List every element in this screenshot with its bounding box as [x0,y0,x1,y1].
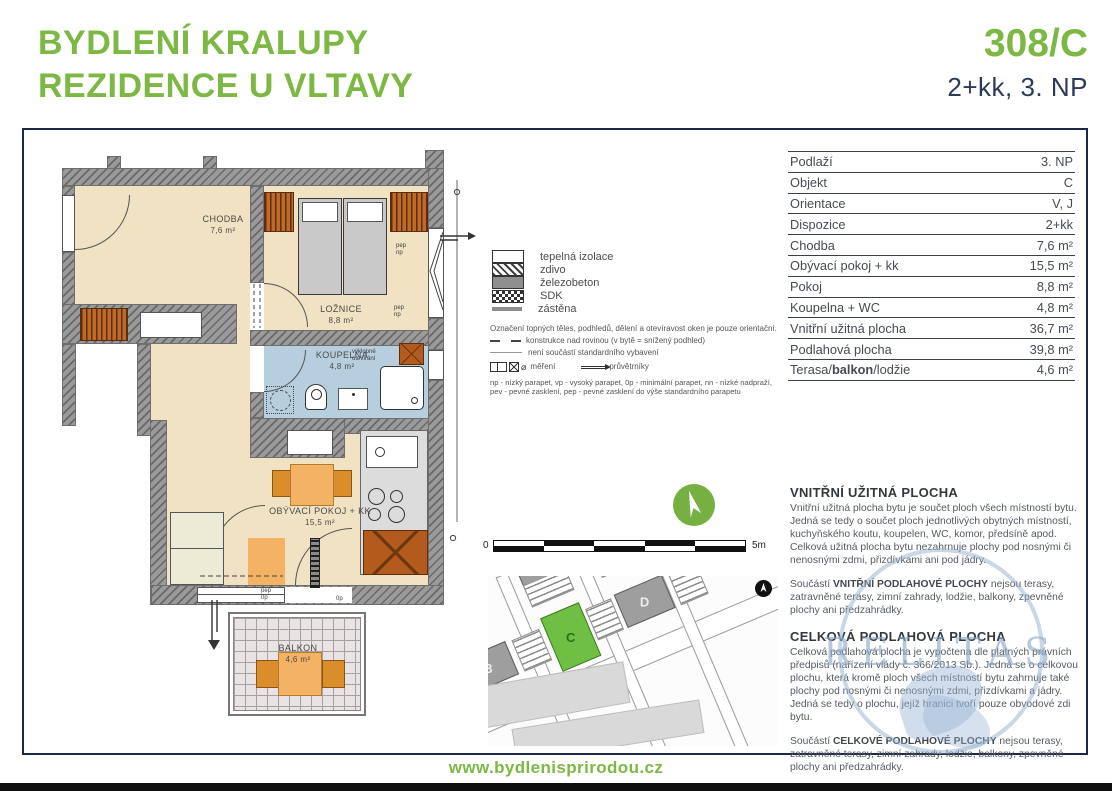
legend-note-text: konstrukce nad rovinou (v bytě = snížený… [526,336,705,347]
dashed-line-icon [490,340,500,342]
washer-drum [270,390,291,411]
spec-value: 7,6 m² [1037,238,1073,253]
annotation-pep-np-1: pep np [396,243,406,256]
label-balkon: BALKON 4,6 m² [258,643,338,665]
room-name: LOŽNICE [303,304,379,315]
spec-row: Vnitřní užitná plocha36,7 m² [788,318,1075,339]
info-blocks: VNITŘNÍ UŽITNÁ PLOCHAVnitřní užitná ploc… [790,485,1078,791]
wall-living-left [150,420,167,605]
wall-stub-top-2 [203,156,217,169]
legend-note-1: Označení topných těles, podhledů, dělení… [490,324,780,335]
kitchen-sink [366,436,418,468]
dining-table [290,464,334,506]
room-name: BALKON [258,643,338,654]
north-compass-icon [673,484,715,526]
legend-item: zdivo [492,264,777,275]
diameter-icon: ⌀ [521,362,526,373]
spec-row: Pokoj8,8 m² [788,277,1075,298]
legend-note-text: np - nízký parapet, vp - vysoký parapet,… [490,378,780,388]
shower-drain [411,397,418,404]
brick-swatch-icon [492,263,524,276]
wardrobe-left [264,192,294,232]
spec-row: Podlaží3. NP [788,152,1075,173]
wall-left-c [62,344,76,426]
burner-1 [368,488,385,505]
dining-chair-left [272,470,292,497]
legend-note-2: konstrukce nad rovinou (v bytě = snížený… [490,336,780,347]
legend-item: zástěna [492,304,777,315]
sofa [170,512,224,585]
washer-outline [266,386,294,414]
spec-value: 39,8 m² [1030,342,1073,357]
room-area: 7,6 m² [185,225,261,236]
label-loznice: LOŽNICE 8,8 m² [303,304,379,326]
pillow-1 [302,202,338,222]
spec-row: Chodba7,6 m² [788,235,1075,256]
legend: tepelná izolacezdivoželezobetonSDKzástěn… [492,251,777,317]
wall-stub-top-3 [425,150,444,169]
title-line-2: REZIDENCE U VLTAVY [38,65,413,108]
annotation-vyklopne: výklopné otevírání [352,349,398,362]
spec-label: Pokoj [790,279,822,294]
room-area: 4,8 m² [300,361,384,372]
legend-note-3: není součástí standardního vybavení [490,348,780,359]
spec-row: ObjektC [788,173,1075,194]
sdk-swatch-icon [492,290,524,303]
scale-end-label: 5m [752,540,766,551]
spec-label: Terasa/balkon/lodžie [790,362,910,377]
site-plan: B C D [488,576,778,746]
spec-row: Dispozice2+kk [788,214,1075,235]
spec-value: 3. NP [1041,154,1073,169]
spec-value: 36,7 m² [1030,321,1073,336]
scale-bar-segment [594,546,644,551]
building-label: D [640,594,649,609]
legend-note-text: pev - pevné zasklení, pep - pevné zaskle… [490,387,780,397]
spec-value: 15,5 m² [1030,258,1073,273]
legend-item-label: SDK [540,290,563,302]
wardrobe-right [390,192,428,232]
spec-value: C [1064,175,1073,190]
side-table [248,538,285,585]
sofa-cushion-line [171,548,223,549]
legend-note-text: průvětrníky [609,362,649,373]
building-label: B [488,660,493,675]
spec-label: Chodba [790,238,835,253]
wall-corridor-left [137,344,151,436]
dashed-line-icon [511,340,521,342]
spec-row: Terasa/balkon/lodžie4,6 m² [788,360,1075,381]
info-block-heading: VNITŘNÍ UŽITNÁ PLOCHA [790,485,1078,500]
legend-note-4: ⌀ měření průvětrníky [490,362,780,373]
unit-number: 308/C [984,22,1088,66]
spec-value: V, J [1052,196,1073,211]
tilt-window-box [399,343,424,365]
wall-left-b [62,252,75,308]
unit-subtitle: 2+kk, 3. NP [947,72,1088,103]
label-chodba: CHODBA 7,6 m² [185,214,261,236]
dining-chair-right [332,470,352,497]
legend-item-label: tepelná izolace [540,251,613,263]
insulation-swatch-icon [492,250,524,263]
spec-label: Obývací pokoj + kk [790,258,898,273]
annotation-pep-0p: pep 0p [261,588,271,601]
info-block-heading: CELKOVÁ PODLAHOVÁ PLOCHA [790,629,1078,644]
wall-right-a [428,168,444,228]
legend-item: železobeton [492,277,777,288]
wall-stub-top-1 [107,156,121,169]
spec-label: Vnitřní užitná plocha [790,321,906,336]
toilet [305,384,327,410]
legend-item-label: železobeton [540,277,599,289]
spec-label: Orientace [790,196,845,211]
meter-cross-icon [509,362,519,372]
flyer-page: BYDLENÍ KRALUPY REZIDENCE U VLTAVY 308/C… [0,0,1112,791]
room-name: CHODBA [185,214,261,225]
spec-label: Dispozice [790,217,845,232]
spec-row: Podlahová plocha39,8 m² [788,339,1075,360]
spec-value: 8,8 m² [1037,279,1073,294]
window-bedroom [428,228,444,318]
bottom-bar [0,783,1112,791]
shower [380,366,424,410]
wardrobe-entry [80,308,128,341]
info-paragraph: Součástí VNITŘNÍ PODLAHOVÉ PLOCHY nejsou… [790,578,1078,617]
annotation-0p: 0p [336,596,343,603]
toilet-bowl [311,389,322,400]
wall-top [62,168,444,186]
entrance-opening [62,195,75,252]
spec-value: 2+kk [1046,217,1073,232]
vent-arrow-icon [581,366,605,369]
kitchen-hood-box [287,430,333,455]
spec-row: OrientaceV, J [788,194,1075,215]
window-living [197,587,285,603]
room-area: 4,6 m² [258,654,338,665]
title-line-1: BYDLENÍ KRALUPY [38,22,413,65]
info-block: VNITŘNÍ UŽITNÁ PLOCHAVnitřní užitná ploc… [790,485,1078,617]
partition-swatch-icon [492,307,522,311]
room-area: 15,5 m² [245,517,395,528]
spec-label: Koupelna + WC [790,300,880,315]
bath-sink [338,388,368,410]
legend-item: SDK [492,291,777,302]
info-paragraph: Vnitřní užitná plocha bytu je součet plo… [790,502,1078,567]
spec-value: 4,6 m² [1037,362,1073,377]
scale-bar-segment [544,546,594,551]
kitchen-corner-cabinet [363,530,428,575]
spec-row: Koupelna + WC4,8 m² [788,298,1075,319]
north-arrow-icon [673,484,715,526]
legend-item-label: zástěna [538,303,577,315]
pillow-2 [347,202,383,222]
wall-right-b [428,318,444,350]
spec-table: Podlaží3. NPObjektCOrientaceV, JDispozic… [788,151,1075,381]
annotation-pep-np-2: pep np [394,305,404,318]
scale-bar-segment [494,546,544,551]
meter-box-icon [490,362,507,372]
footer-url[interactable]: www.bydlenisprirodou.cz [0,758,1112,778]
parking-strip [593,576,645,578]
scale-bar [493,540,746,552]
window-bathroom [428,350,444,380]
legend-item: tepelná izolace [492,251,777,262]
thin-line-icon [490,352,522,353]
scale-bar-segment [695,546,745,551]
legend-note-text: měření [530,362,555,373]
spec-row: Obývací pokoj + kk15,5 m² [788,256,1075,277]
room-area: 8,8 m² [303,315,379,326]
burner-2 [390,490,403,503]
partition-screen [310,538,320,588]
wall-right-c [428,380,444,605]
legend-notes: Označení topných těles, podhledů, dělení… [490,322,780,397]
legend-note-text: Označení topných těles, podhledů, dělení… [490,324,777,335]
spec-label: Objekt [790,175,827,190]
info-paragraph: Celková podlahová plocha je vypočtena dl… [790,646,1078,724]
scale-bar-segment [645,546,695,551]
spec-label: Podlaží [790,154,833,169]
room-name: OBÝVACÍ POKOJ + KK [245,506,395,517]
legend-parapet-notes: np - nízký parapet, vp - vysoký parapet,… [490,378,780,397]
site-north-icon [755,580,772,597]
page-title: BYDLENÍ KRALUPY REZIDENCE U VLTAVY [38,22,413,108]
scale-start-label: 0 [483,540,489,551]
legend-item-label: zdivo [540,264,566,276]
spec-value: 4,8 m² [1037,300,1073,315]
wall-partition-koupelna [250,392,264,418]
spec-label: Podlahová plocha [790,342,892,357]
sink-faucet [352,393,355,396]
label-obyvaci: OBÝVACÍ POKOJ + KK 15,5 m² [245,506,395,528]
legend-note-text: není součástí standardního vybavení [528,348,659,359]
kitchen-sink-drain [375,447,385,457]
concrete-swatch-icon [492,276,524,289]
niche-box [140,312,202,338]
building-label: C [566,630,575,645]
